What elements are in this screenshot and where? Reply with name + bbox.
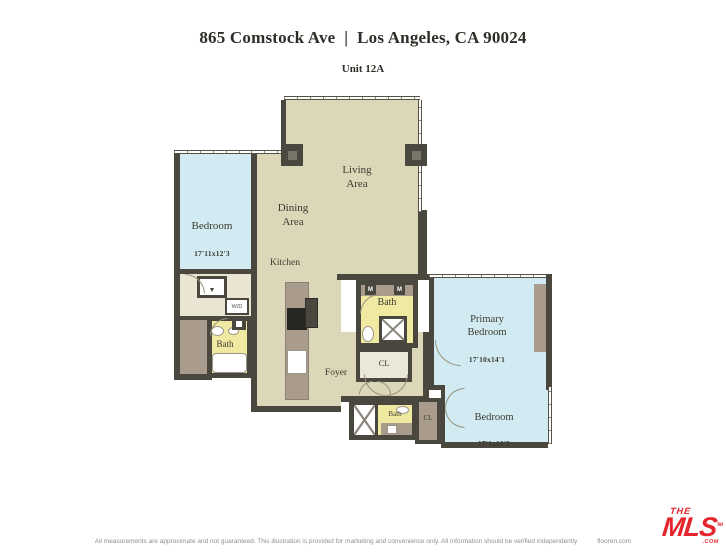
bedroom-right-label: Bedroom 17'1x10'9 xyxy=(459,398,529,462)
logo-tm: TM xyxy=(716,522,722,528)
closet-bedroom-label: CL xyxy=(415,414,441,423)
primary-bedroom-label: Primary Bedroom 17'10x14'1 xyxy=(449,300,525,377)
floorplan-sheet: 865 Comstock Ave | Los Angeles, CA 90024… xyxy=(0,0,726,560)
toilet-icon xyxy=(387,425,397,434)
bath-primary-label: Bath xyxy=(367,297,407,310)
wardrobe-icon: M xyxy=(365,284,376,295)
bath-hall-label: Bath xyxy=(378,410,412,419)
column-icon xyxy=(281,144,303,166)
dining-area-label: Dining Area xyxy=(261,202,325,230)
window-bedroom-right xyxy=(548,387,552,444)
bedroom-right-name: Bedroom xyxy=(459,411,529,424)
themls-logo: THE MLSTM .COM xyxy=(655,506,724,556)
closet-rod-glyph: ▼ xyxy=(209,286,216,294)
washer-dryer-label: W/D xyxy=(232,304,243,310)
bedroom-left-dims: 17'11x12'3 xyxy=(177,249,247,258)
logo-mls: MLSTM xyxy=(661,516,723,539)
primary-bedroom-name: Primary Bedroom xyxy=(449,313,525,339)
floorplan-drawing: ▼ W/D M M xyxy=(157,92,571,464)
kitchen-label: Kitchen xyxy=(261,258,309,270)
window-bedroom-left xyxy=(174,150,251,154)
column-icon xyxy=(405,144,427,166)
wall-living-right-jut xyxy=(418,210,427,280)
bath-left-label: Bath xyxy=(205,339,245,350)
closet-hall-label: CL xyxy=(358,358,410,369)
fridge-icon xyxy=(305,298,318,328)
closet-primary-strip xyxy=(534,284,546,352)
provider-credit: flooren.com xyxy=(597,538,631,545)
wall-living-left xyxy=(281,100,286,150)
living-area-label: Living Area xyxy=(324,164,390,192)
window-connector xyxy=(251,150,284,154)
wall-primary-right xyxy=(546,274,552,390)
page-title: 865 Comstock Ave | Los Angeles, CA 90024 xyxy=(0,28,726,48)
wardrobe-icon: M xyxy=(394,284,405,295)
foyer-label: Foyer xyxy=(308,368,364,380)
sink-counter-icon xyxy=(287,350,307,374)
cabinet-icon xyxy=(232,318,246,330)
window-primary-top xyxy=(429,274,546,278)
stove-icon xyxy=(287,308,307,330)
window-living-top xyxy=(284,96,420,100)
footer: All measurements are approximate and not… xyxy=(0,538,726,545)
disclaimer-text: All measurements are approximate and not… xyxy=(95,538,577,545)
shower-icon xyxy=(354,405,378,435)
bedroom-left-label: Bedroom 17'11x12'3 xyxy=(177,206,247,272)
shower-icon xyxy=(379,316,407,343)
wall-living-bottom xyxy=(337,274,429,280)
washer-dryer: W/D xyxy=(225,298,249,315)
toilet-icon xyxy=(362,326,374,342)
bathtub-icon xyxy=(212,353,247,373)
unit-label: Unit 12A xyxy=(0,63,726,75)
bedroom-left-name: Bedroom xyxy=(177,220,247,234)
primary-bedroom-dims: 17'10x14'1 xyxy=(449,355,525,364)
bedroom-right-dims: 17'1x10'9 xyxy=(459,439,529,448)
